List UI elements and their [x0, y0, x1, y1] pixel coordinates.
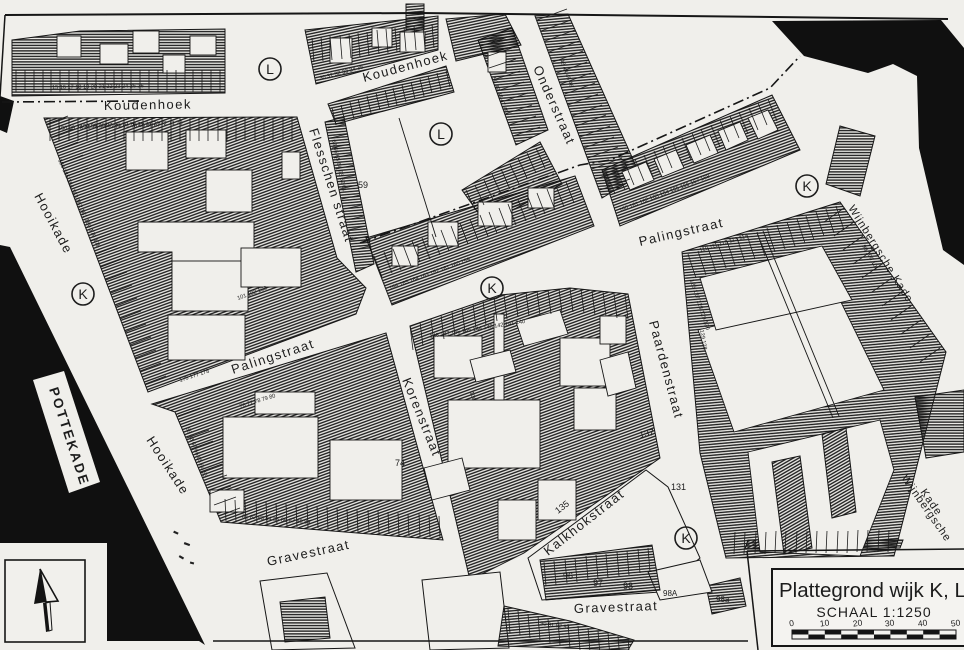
svg-text:20: 20 — [852, 617, 863, 628]
svg-text:50: 50 — [950, 617, 961, 628]
svg-text:30: 30 — [884, 617, 895, 628]
svg-text:Koudenhoek: Koudenhoek — [104, 96, 192, 113]
svg-text:Plattegrond wijk K, L: Plattegrond wijk K, L — [779, 579, 964, 602]
svg-text:K: K — [487, 280, 497, 296]
svg-text:59: 59 — [358, 180, 368, 190]
svg-text:97: 97 — [593, 578, 603, 588]
svg-text:74: 74 — [395, 458, 405, 468]
svg-text:98A: 98A — [663, 589, 678, 598]
svg-text:K: K — [802, 178, 812, 194]
svg-text:96: 96 — [563, 571, 573, 581]
svg-text:131: 131 — [671, 482, 686, 492]
svg-text:98a: 98a — [716, 595, 730, 604]
svg-text:L: L — [266, 61, 274, 77]
svg-text:Gravestraat: Gravestraat — [574, 598, 659, 616]
svg-text:SCHAAL 1:1250: SCHAAL 1:1250 — [816, 604, 931, 620]
svg-text:98: 98 — [623, 581, 633, 591]
svg-text:K: K — [681, 530, 691, 546]
svg-text:10: 10 — [819, 617, 830, 628]
svg-text:40: 40 — [917, 617, 928, 628]
svg-text:K: K — [78, 286, 88, 302]
svg-text:L: L — [437, 126, 445, 142]
